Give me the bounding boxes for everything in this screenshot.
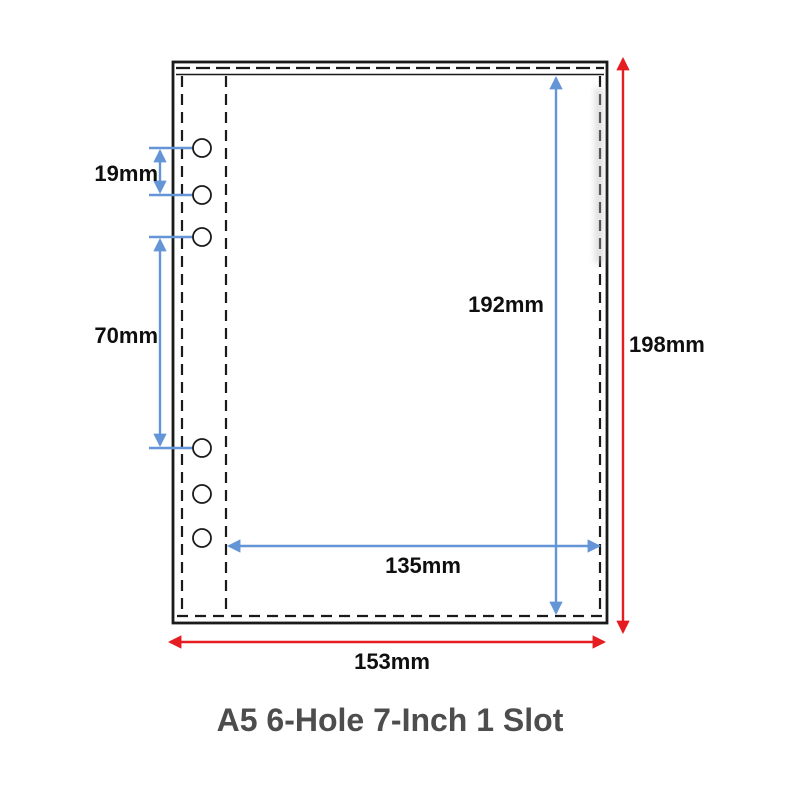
dimension-diagram: 19mm 70mm 192mm 135mm 198mm 153mm [0, 0, 800, 800]
dim-label-outer-height: 198mm [629, 332, 705, 357]
binder-hole-3 [193, 228, 211, 246]
binder-hole-4 [193, 439, 211, 457]
dim-label-hole-spacing-small: 19mm [94, 161, 158, 186]
dim-label-outer-width: 153mm [354, 649, 430, 674]
pocket-outer-edge [173, 62, 607, 623]
scan-artifact-smudge [594, 88, 604, 263]
binder-hole-5 [193, 485, 211, 503]
product-title: A5 6-Hole 7-Inch 1 Slot [0, 702, 780, 739]
dim-label-slot-inner-width: 135mm [385, 553, 461, 578]
binder-hole-2 [193, 186, 211, 204]
pocket-outline [173, 62, 607, 623]
dim-label-hole-spacing-large: 70mm [94, 323, 158, 348]
binder-hole-1 [193, 139, 211, 157]
product-dimension-page: 19mm 70mm 192mm 135mm 198mm 153mm A5 6-H… [0, 0, 800, 800]
binder-hole-6 [193, 529, 211, 547]
dim-label-slot-inner-height: 192mm [468, 292, 544, 317]
